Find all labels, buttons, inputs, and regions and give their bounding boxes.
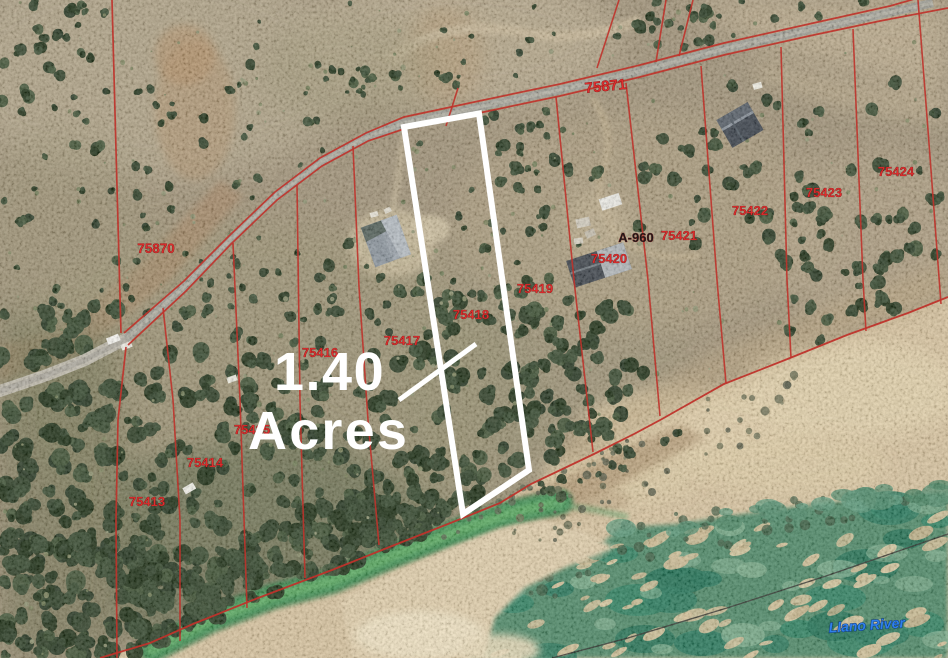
svg-text:75420: 75420 [591, 251, 627, 266]
svg-text:75423: 75423 [806, 185, 842, 200]
svg-text:75870: 75870 [137, 241, 175, 256]
svg-text:75419: 75419 [517, 281, 553, 296]
svg-text:Acres: Acres [248, 401, 409, 461]
svg-text:75414: 75414 [187, 455, 224, 470]
svg-text:1.40: 1.40 [274, 342, 385, 402]
svg-text:75422: 75422 [732, 203, 768, 218]
svg-text:75417: 75417 [384, 333, 420, 348]
svg-text:A-960: A-960 [618, 230, 653, 245]
svg-text:75418: 75418 [453, 307, 489, 322]
svg-text:75413: 75413 [129, 494, 165, 509]
svg-text:75421: 75421 [661, 228, 697, 243]
svg-text:75424: 75424 [878, 164, 915, 179]
